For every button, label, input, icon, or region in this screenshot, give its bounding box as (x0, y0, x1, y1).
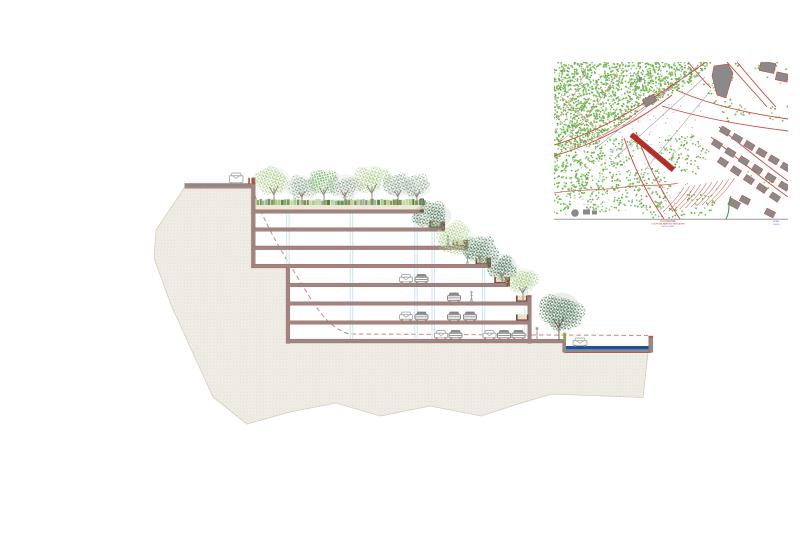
svg-text:1:2000: 1:2000 (773, 224, 780, 226)
svg-text:PLAN MASSE: PLAN MASSE (660, 220, 676, 223)
svg-text:ECH 1:2000: ECH 1:2000 (662, 226, 675, 228)
svg-text:NORD: NORD (773, 221, 780, 223)
